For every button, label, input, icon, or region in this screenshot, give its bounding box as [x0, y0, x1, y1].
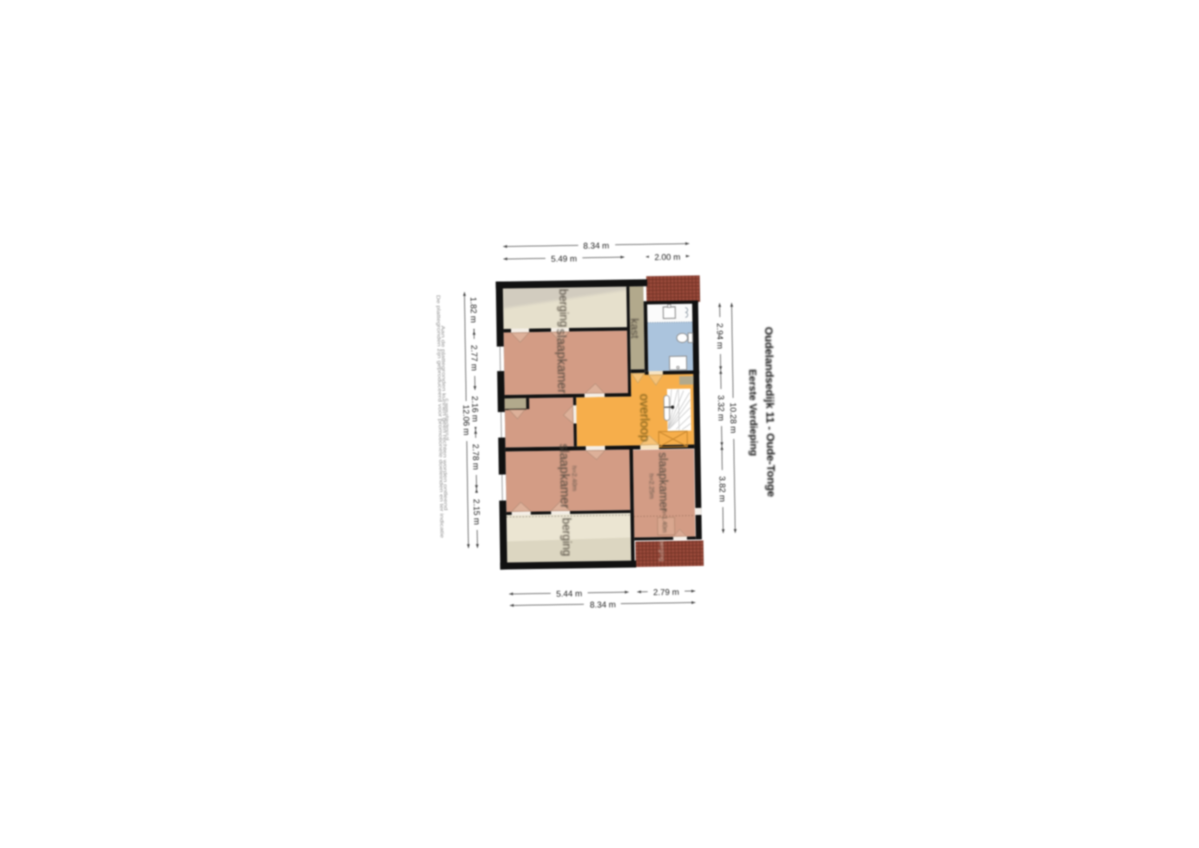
- svg-text:3.82 m: 3.82 m: [717, 476, 727, 502]
- svg-text:8.34 m: 8.34 m: [583, 240, 609, 250]
- svg-text:Oudelandsedijk 11 - Oude-Tonge: Oudelandsedijk 11 - Oude-Tonge: [762, 327, 777, 497]
- svg-text:2.77 m: 2.77 m: [469, 345, 479, 371]
- svg-text:berging: berging: [658, 540, 665, 562]
- svg-text:3.32 m: 3.32 m: [716, 395, 726, 421]
- svg-text:kast: kast: [628, 318, 640, 338]
- svg-text:berging: berging: [556, 289, 569, 328]
- svg-text:8.34 m: 8.34 m: [590, 599, 616, 609]
- svg-text:2.79 m: 2.79 m: [653, 587, 679, 597]
- svg-text:2.78 m: 2.78 m: [471, 444, 481, 470]
- svg-text:1.82 m: 1.82 m: [469, 297, 479, 323]
- svg-text:slaapkamer: slaapkamer: [554, 329, 569, 394]
- svg-text:h=2.25m: h=2.25m: [647, 473, 654, 499]
- svg-text:berging: berging: [559, 518, 572, 557]
- svg-text:Eerste Verdieping: Eerste Verdieping: [746, 369, 758, 456]
- svg-text:12.06 m: 12.06 m: [461, 405, 471, 436]
- svg-text:2.15 m: 2.15 m: [472, 499, 482, 525]
- svg-text:10.28 m: 10.28 m: [728, 402, 738, 433]
- svg-text:© www.objectenco.nl: © www.objectenco.nl: [444, 398, 451, 440]
- svg-text:2.94 m: 2.94 m: [715, 323, 725, 349]
- svg-text:2.16 m: 2.16 m: [470, 396, 480, 422]
- svg-text:slaapkamer: slaapkamer: [557, 444, 572, 509]
- svg-text:2.00 m: 2.00 m: [654, 252, 680, 262]
- svg-text:5.44 m: 5.44 m: [556, 588, 582, 598]
- svg-text:overloop: overloop: [637, 394, 652, 442]
- svg-text:h=1.40m: h=1.40m: [660, 509, 666, 533]
- svg-text:h=2.40m: h=2.40m: [570, 466, 577, 492]
- svg-text:5.49 m: 5.49 m: [551, 253, 577, 263]
- svg-text:slaapkamer: slaapkamer: [656, 452, 669, 512]
